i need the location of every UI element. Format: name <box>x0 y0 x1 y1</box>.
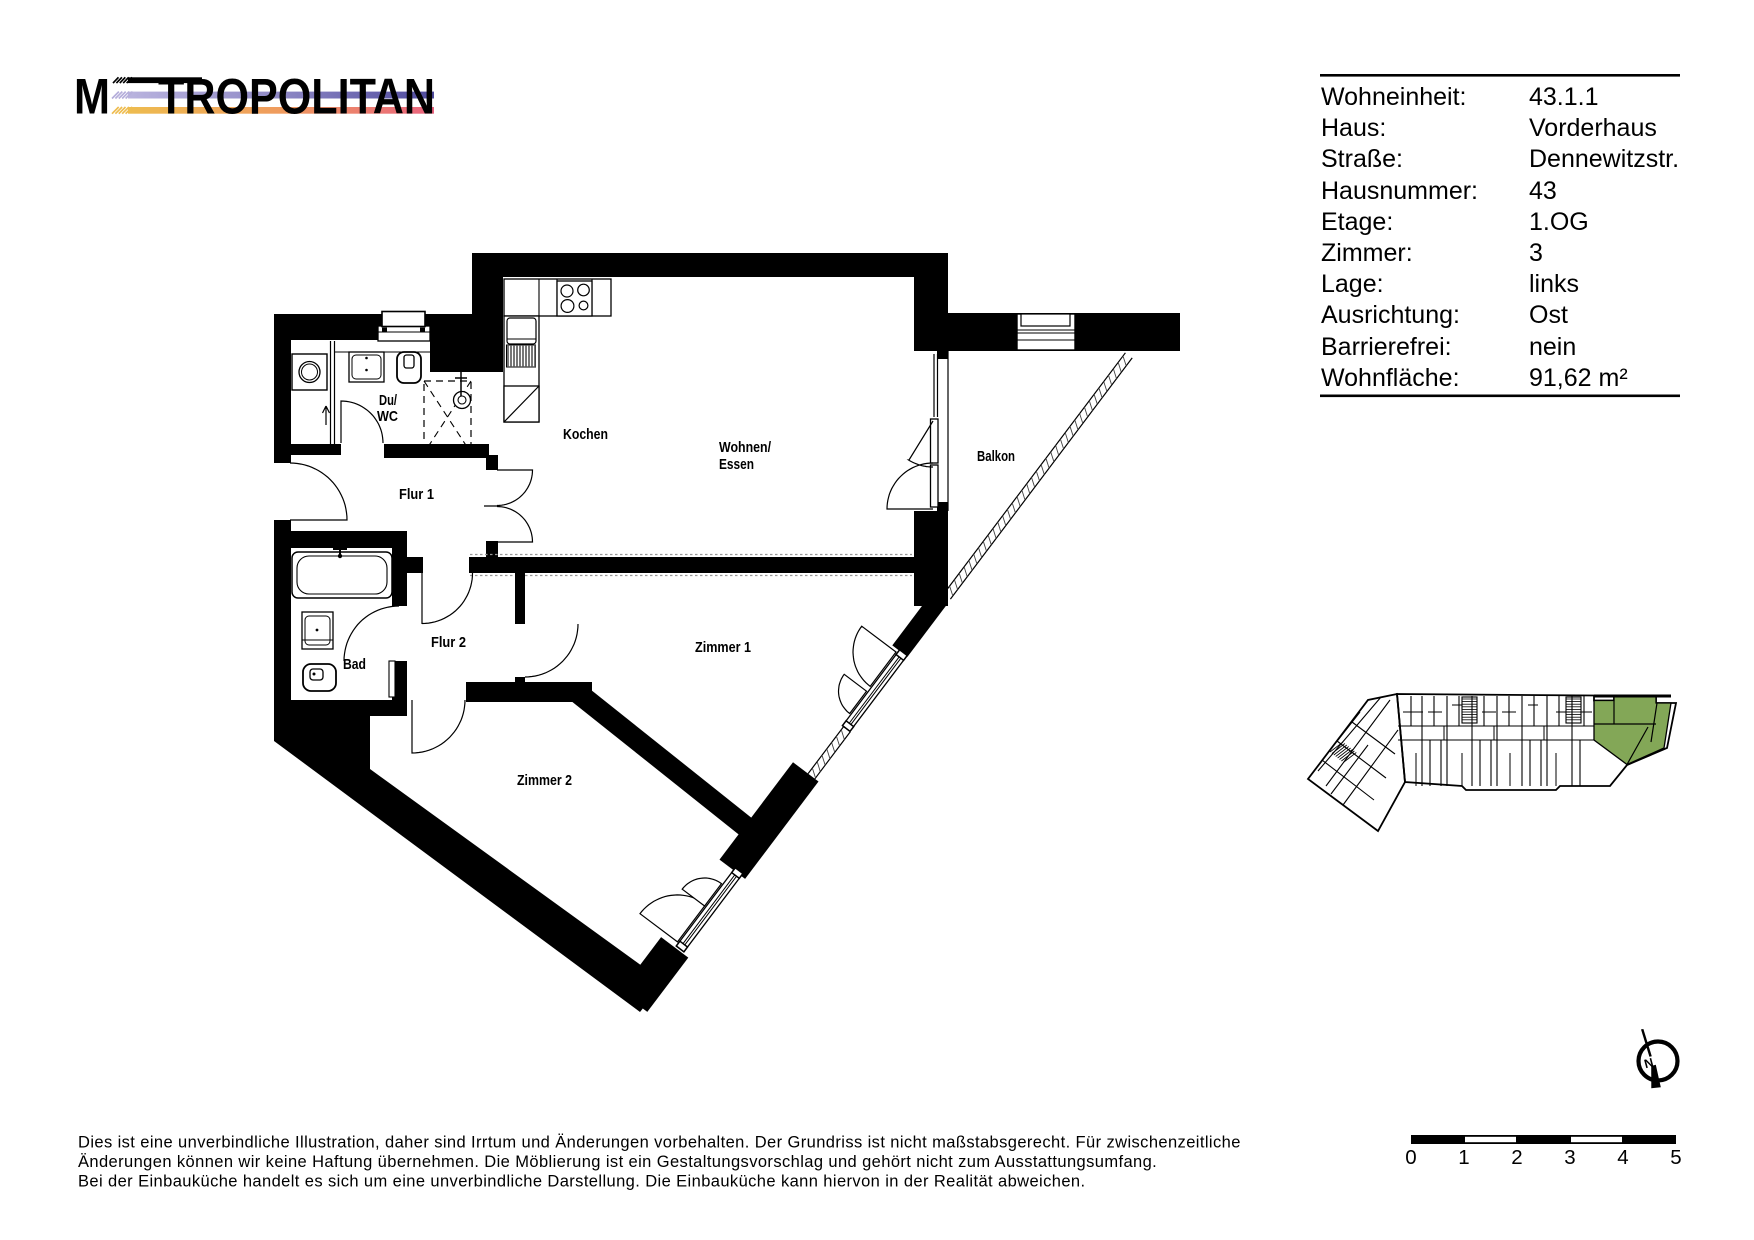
svg-text:1: 1 <box>1458 1146 1469 1169</box>
svg-text:Etage:: Etage: <box>1321 208 1393 236</box>
svg-text:Zimmer 1: Zimmer 1 <box>695 639 751 656</box>
svg-text:Haus:: Haus: <box>1321 114 1386 142</box>
svg-text:2: 2 <box>1511 1146 1522 1169</box>
svg-text:Vorderhaus: Vorderhaus <box>1529 114 1657 142</box>
svg-text:Änderungen können wir keine Ha: Änderungen können wir keine Haftung über… <box>78 1153 1157 1171</box>
svg-text:43.1.1: 43.1.1 <box>1529 83 1599 111</box>
svg-text:Flur 2: Flur 2 <box>431 634 466 651</box>
svg-text:Bad: Bad <box>343 656 366 673</box>
svg-text:Wohnen/: Wohnen/ <box>719 439 772 456</box>
svg-text:Essen: Essen <box>719 456 754 473</box>
svg-text:Zimmer 2: Zimmer 2 <box>517 772 572 789</box>
svg-text:Du/: Du/ <box>379 392 398 409</box>
svg-text:nein: nein <box>1529 333 1576 361</box>
svg-text:Straße:: Straße: <box>1321 145 1403 173</box>
svg-text:Zimmer:: Zimmer: <box>1321 239 1413 267</box>
svg-text:Flur 1: Flur 1 <box>399 486 434 503</box>
svg-text:0: 0 <box>1405 1146 1416 1169</box>
svg-text:Bei der Einbauküche handelt es: Bei der Einbauküche handelt es sich um e… <box>78 1173 1085 1191</box>
svg-text:M: M <box>74 68 110 124</box>
svg-text:WC: WC <box>377 408 398 425</box>
svg-text:TROPOLITAN: TROPOLITAN <box>158 68 435 124</box>
svg-text:Wohnfläche:: Wohnfläche: <box>1321 364 1460 392</box>
svg-text:91,62 m²: 91,62 m² <box>1529 364 1628 392</box>
svg-text:3: 3 <box>1564 1146 1575 1169</box>
svg-text:Dies ist eine unverbindliche I: Dies ist eine unverbindliche Illustratio… <box>78 1133 1241 1151</box>
svg-text:Ost: Ost <box>1529 301 1568 329</box>
svg-text:Balkon: Balkon <box>977 448 1015 465</box>
svg-text:Ausrichtung:: Ausrichtung: <box>1321 301 1460 329</box>
svg-text:Lage:: Lage: <box>1321 270 1384 298</box>
svg-text:Dennewitzstr.: Dennewitzstr. <box>1529 145 1679 173</box>
svg-text:Hausnummer:: Hausnummer: <box>1321 177 1478 205</box>
svg-text:Kochen: Kochen <box>563 426 608 443</box>
svg-text:links: links <box>1529 270 1579 298</box>
svg-text:1.OG: 1.OG <box>1529 208 1589 236</box>
svg-text:4: 4 <box>1617 1146 1628 1169</box>
svg-text:5: 5 <box>1670 1146 1681 1169</box>
svg-text:Wohneinheit:: Wohneinheit: <box>1321 83 1466 111</box>
svg-text:43: 43 <box>1529 177 1557 205</box>
svg-text:Barrierefrei:: Barrierefrei: <box>1321 333 1452 361</box>
svg-text:3: 3 <box>1529 239 1543 267</box>
